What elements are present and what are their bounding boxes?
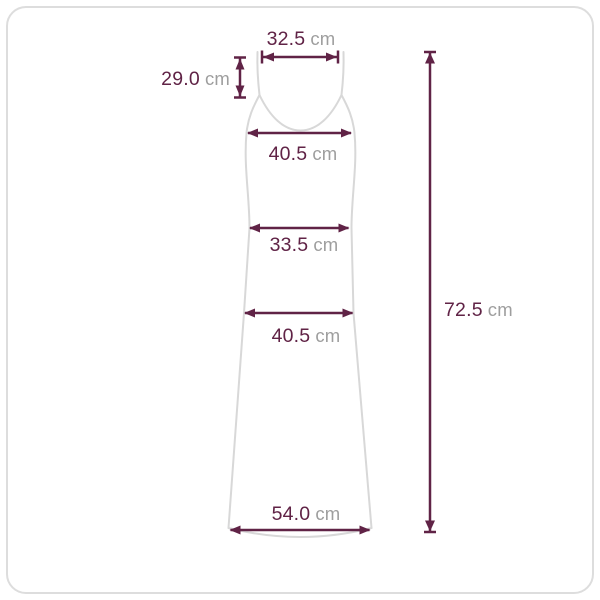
bust-width-label: 40.5cm bbox=[269, 143, 338, 165]
arrow-left-icon bbox=[244, 309, 255, 318]
right-strap bbox=[342, 52, 344, 95]
hem-width-unit: cm bbox=[315, 503, 340, 524]
arrow-up-icon bbox=[425, 53, 435, 64]
top-width-label: 32.5cm bbox=[267, 28, 336, 50]
strap-drop-unit: cm bbox=[205, 68, 230, 89]
waist-width-unit: cm bbox=[313, 234, 338, 255]
strap-drop-value: 29.0 bbox=[161, 68, 200, 90]
hip-width-unit: cm bbox=[315, 325, 340, 346]
arrow-left-icon bbox=[247, 129, 258, 138]
arrow-right-icon bbox=[341, 129, 352, 138]
total-length-unit: cm bbox=[488, 299, 513, 320]
hip-width-label: 40.5cm bbox=[272, 325, 341, 347]
hem-width-label: 54.0cm bbox=[272, 503, 341, 525]
bust-width-unit: cm bbox=[312, 143, 337, 164]
top-width-dimension: 32.5cm bbox=[262, 28, 338, 64]
waist-width-label: 33.5cm bbox=[270, 234, 339, 256]
arrow-left-icon bbox=[230, 526, 241, 535]
total-length-dimension: 72.5cm bbox=[424, 52, 513, 532]
left-strap bbox=[257, 52, 259, 95]
total-length-value: 72.5 bbox=[444, 299, 483, 321]
hem-width-dimension: 54.0cm bbox=[230, 503, 371, 535]
hip-width-dimension: 40.5cm bbox=[244, 309, 354, 348]
arrow-down-icon bbox=[425, 521, 435, 532]
top-width-value: 32.5 bbox=[267, 28, 306, 50]
dress-outline-icon bbox=[229, 52, 372, 537]
arrow-right-icon bbox=[360, 526, 371, 535]
arrow-left-icon bbox=[263, 53, 274, 62]
strap-drop-label: 29.0cm bbox=[161, 68, 230, 90]
strap-drop-dimension: 29.0cm bbox=[161, 58, 246, 98]
arrow-right-icon bbox=[343, 309, 354, 318]
waist-width-value: 33.5 bbox=[270, 234, 309, 256]
dress-measurement-diagram: 32.5cm 29.0cm 40.5cm 33.5cm 40.5cm 54.0c… bbox=[0, 0, 600, 600]
arrow-left-icon bbox=[249, 224, 260, 233]
total-length-label: 72.5cm bbox=[444, 299, 513, 321]
arrow-up-icon bbox=[236, 59, 245, 70]
neckline bbox=[260, 95, 342, 131]
bust-width-dimension: 40.5cm bbox=[247, 129, 352, 166]
hem-width-value: 54.0 bbox=[272, 503, 311, 525]
top-width-unit: cm bbox=[310, 28, 335, 49]
waist-width-dimension: 33.5cm bbox=[249, 224, 350, 257]
arrow-right-icon bbox=[339, 224, 350, 233]
bust-width-value: 40.5 bbox=[269, 143, 308, 165]
arrow-down-icon bbox=[236, 86, 245, 97]
arrow-right-icon bbox=[326, 53, 337, 62]
hip-width-value: 40.5 bbox=[272, 325, 311, 347]
